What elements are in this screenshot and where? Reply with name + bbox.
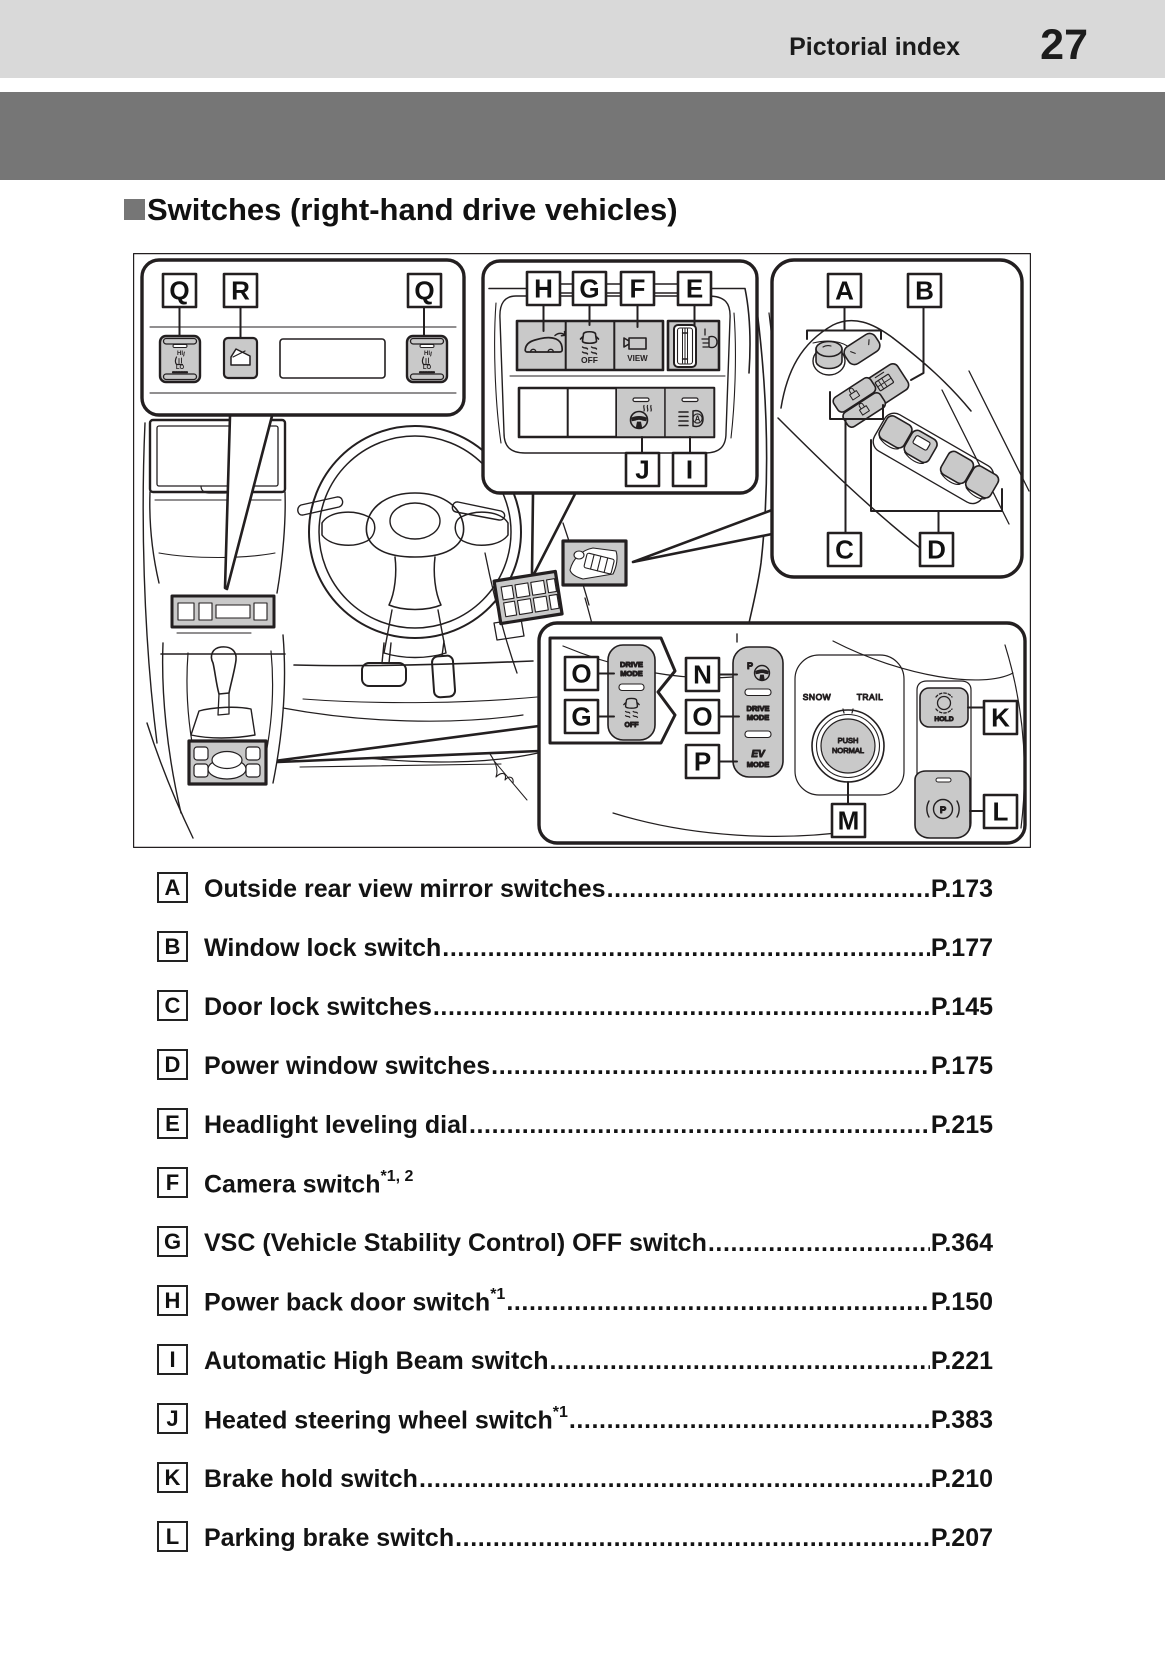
svg-text:LO: LO — [423, 365, 432, 371]
svg-text:H: H — [534, 274, 553, 304]
svg-text:OFF: OFF — [625, 722, 640, 729]
svg-text:I: I — [686, 455, 693, 485]
svg-text:O: O — [571, 659, 591, 689]
svg-text:N: N — [693, 660, 712, 690]
svg-text:PUSH: PUSH — [838, 736, 859, 745]
svg-text:E: E — [686, 274, 703, 304]
svg-text:HI: HI — [177, 351, 183, 357]
svg-text:A: A — [695, 415, 701, 424]
svg-text:P: P — [747, 661, 753, 671]
svg-text:C: C — [835, 535, 854, 565]
svg-text:MODE: MODE — [747, 760, 770, 769]
svg-text:A: A — [835, 276, 854, 306]
svg-text:NORMAL: NORMAL — [832, 746, 864, 755]
svg-text:TRAIL: TRAIL — [857, 692, 884, 702]
svg-text:MODE: MODE — [620, 669, 643, 678]
svg-text:M: M — [838, 806, 860, 836]
svg-text:G: G — [579, 274, 599, 304]
svg-text:K: K — [991, 703, 1010, 733]
svg-text:HI: HI — [424, 351, 430, 357]
svg-text:SNOW: SNOW — [803, 692, 831, 702]
svg-text:Q: Q — [414, 276, 434, 306]
svg-text:P: P — [694, 747, 711, 777]
svg-text:LO: LO — [176, 365, 185, 371]
svg-text:HOLD: HOLD — [934, 716, 953, 723]
svg-text:J: J — [635, 455, 649, 485]
svg-text:F: F — [630, 274, 646, 304]
svg-text:G: G — [571, 702, 591, 732]
svg-text:B: B — [915, 276, 934, 306]
svg-text:MODE: MODE — [747, 713, 770, 722]
svg-text:DRIVE: DRIVE — [747, 704, 770, 713]
svg-text:R: R — [231, 276, 250, 306]
svg-text:OFF: OFF — [581, 355, 598, 365]
svg-text:O: O — [692, 702, 712, 732]
svg-text:EV: EV — [751, 749, 766, 760]
svg-text:Q: Q — [169, 276, 189, 306]
svg-text:L: L — [993, 797, 1009, 827]
svg-text:D: D — [927, 535, 946, 565]
svg-text:DRIVE: DRIVE — [620, 660, 643, 669]
svg-text:VIEW: VIEW — [627, 354, 648, 363]
svg-text:P: P — [940, 805, 947, 816]
